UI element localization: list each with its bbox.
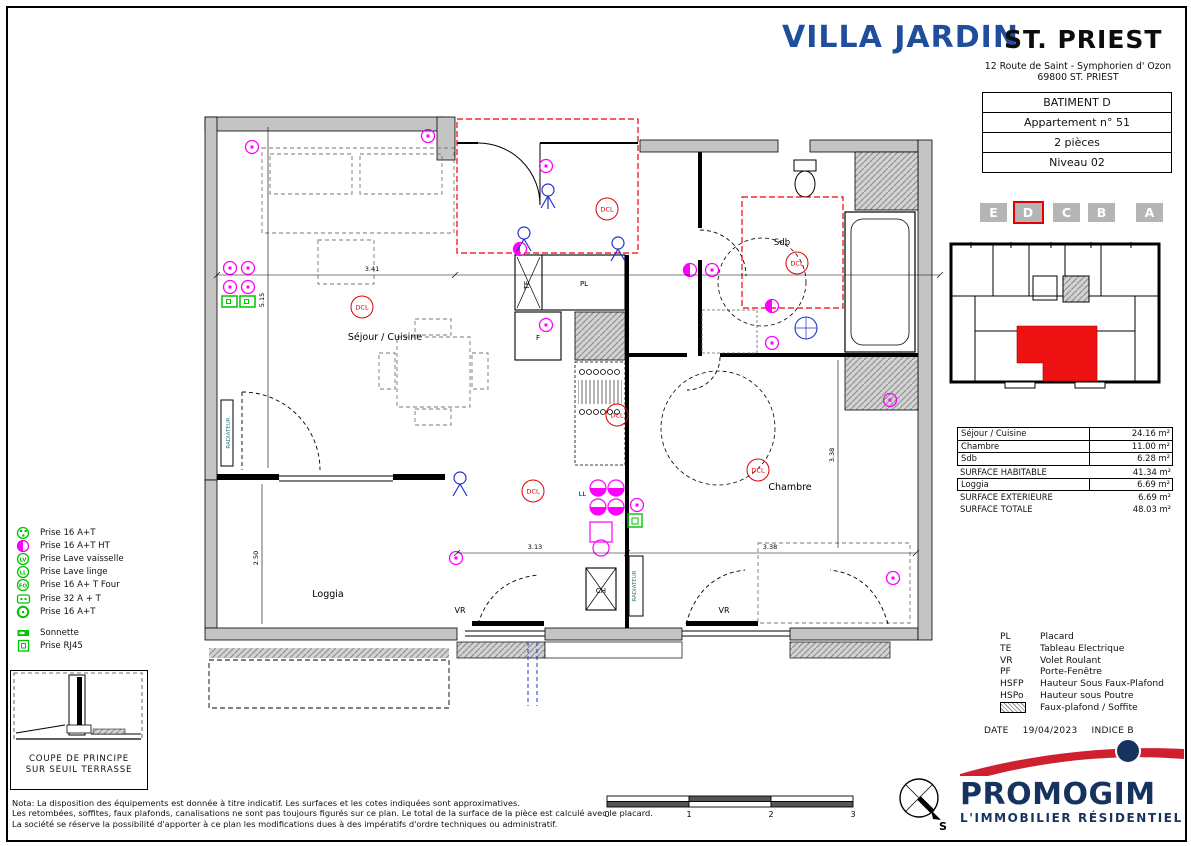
green-sockets xyxy=(222,296,255,307)
vr-label: VR xyxy=(454,606,465,615)
svg-text:2: 2 xyxy=(768,810,773,819)
dimension-lines xyxy=(214,127,943,624)
clearance-circle xyxy=(718,238,806,326)
svg-text:3.13: 3.13 xyxy=(528,543,542,551)
legend-item: FO Prise 16 A+ T Four xyxy=(16,579,216,592)
nota-line2: Les retombées, soffites, faux plafonds, … xyxy=(12,808,653,818)
prise-16at-b-icon xyxy=(16,605,31,619)
room-label-loggia: Loggia xyxy=(312,589,343,600)
date-value: 19/04/2023 xyxy=(1023,726,1078,736)
vr-label: VR xyxy=(718,606,729,615)
ch-label: CH xyxy=(596,587,606,595)
soffit-kitchen xyxy=(575,312,625,360)
svg-text:2.50: 2.50 xyxy=(252,551,260,565)
loggia-facade xyxy=(217,474,445,481)
rj45-socket xyxy=(628,514,642,527)
svg-text:3: 3 xyxy=(850,810,855,819)
svg-text:5.15: 5.15 xyxy=(258,293,266,307)
svg-text:3.38: 3.38 xyxy=(763,543,777,551)
abbreviations-legend: PLPlacard TETableau Electrique VRVolet R… xyxy=(1000,631,1164,717)
electrical-legend: Prise 16 A+T Prise 16 A+T HT LV Prise La… xyxy=(16,526,216,653)
promogim-globe-icon xyxy=(1116,740,1140,763)
legend-item: Prise 16 A+T xyxy=(16,605,216,618)
legend-item: LL Prise Lave linge xyxy=(16,566,216,579)
pl-label: PL xyxy=(580,280,588,288)
surface-row: Sdb6.28 m² xyxy=(958,452,1172,465)
surface-row: Séjour / Cuisine24.16 m² xyxy=(958,428,1172,440)
nota-line3: La société se réserve la possibilité d'a… xyxy=(12,819,653,829)
north-compass-icon: S xyxy=(895,775,949,833)
building-tile-c: C xyxy=(1053,203,1080,222)
svg-text:DCL: DCL xyxy=(751,467,765,475)
radiator-label: RADIATEUR xyxy=(226,417,232,448)
info-niveau: Niveau 02 xyxy=(983,152,1171,172)
surface-totale-row: SURFACE TOTALE48.03 m² xyxy=(957,503,1173,515)
indice-value: INDICE B xyxy=(1092,726,1134,736)
sink-symbol xyxy=(795,317,817,339)
svg-text:3.38: 3.38 xyxy=(828,448,836,462)
building-tile-a: A xyxy=(1136,203,1163,222)
scale-bar: 0 1 2 3 xyxy=(604,793,862,819)
building-tile-d-selected: D xyxy=(1013,201,1044,224)
promogim-logo: PROMOGIM L'IMMOBILIER RÉSIDENTIEL xyxy=(960,740,1186,825)
svg-text:1: 1 xyxy=(686,810,691,819)
prise-32at-icon xyxy=(16,592,31,606)
address-line1: 12 Route de Saint - Symphorien d' Ozon xyxy=(972,61,1184,72)
svg-text:LV: LV xyxy=(20,557,28,563)
radiator-label: RADIATEUR xyxy=(632,570,638,601)
legend-item: Prise 16 A+T HT xyxy=(16,539,216,552)
info-batiment: BATIMENT D xyxy=(983,93,1171,112)
legend-item: Prise RJ45 xyxy=(16,640,216,653)
prise-16at-ht-icon xyxy=(16,539,31,553)
floor-plan-sheet: VILLA JARDIN ST. PRIEST 12 Route de Sain… xyxy=(0,0,1191,846)
address-line2: 69800 ST. PRIEST xyxy=(972,72,1184,83)
legend-item: Sonnette xyxy=(16,626,216,639)
promogim-tagline: L'IMMOBILIER RÉSIDENTIEL xyxy=(960,811,1186,825)
terrace-below xyxy=(209,648,449,708)
te-label: TE xyxy=(523,281,531,291)
date-line: DATE19/04/2023INDICE B xyxy=(984,726,1148,736)
svg-text:FO: FO xyxy=(19,584,28,590)
f-label: F xyxy=(536,334,540,342)
svg-text:LL: LL xyxy=(20,570,27,576)
faux-plafond-hatch-swatch xyxy=(1000,702,1026,713)
washer-symbols xyxy=(590,480,624,556)
svg-text:DCL: DCL xyxy=(600,206,614,214)
sonnette-icon xyxy=(16,626,31,640)
city-title: ST. PRIEST xyxy=(1004,25,1162,54)
building-tile-e: E xyxy=(980,203,1007,222)
coupe-caption: COUPE DE PRINCIPE SUR SEUIL TERRASSE xyxy=(11,754,147,776)
apartment-info-table: BATIMENT D Appartement n° 51 2 pièces Ni… xyxy=(982,92,1172,173)
soffit-sdb xyxy=(845,355,918,410)
coupe-box: COUPE DE PRINCIPE SUR SEUIL TERRASSE xyxy=(10,670,148,790)
svg-text:0: 0 xyxy=(604,810,609,819)
surface-exterieure-row: SURFACE EXTERIEURE6.69 m² xyxy=(957,491,1173,503)
vr-box xyxy=(686,621,758,626)
project-title: VILLA JARDIN xyxy=(782,20,1019,55)
legend-item: Prise 32 A + T xyxy=(16,592,216,605)
prise-lave-vaisselle-icon: LV xyxy=(16,552,31,566)
coupe-drawing xyxy=(11,671,145,747)
promogim-name: PROMOGIM xyxy=(960,780,1186,810)
nota-block: Nota: La disposition des équipements est… xyxy=(12,798,653,829)
prise-lave-linge-icon: LL xyxy=(16,565,31,579)
main-floor-plan: LL CH RADIATEUR RADIATEUR xyxy=(190,105,950,720)
svg-text:DCL: DCL xyxy=(355,304,369,312)
svg-text:S: S xyxy=(939,820,947,833)
key-plan xyxy=(945,236,1167,390)
svg-text:DCL: DCL xyxy=(610,412,624,420)
svg-text:3.41: 3.41 xyxy=(365,265,379,273)
surface-loggia-row: Loggia6.69 m² xyxy=(958,479,1172,491)
room-label-chambre: Chambre xyxy=(768,482,811,493)
vr-box xyxy=(472,621,544,626)
washer-label: LL xyxy=(579,490,587,498)
prise-rj45-icon xyxy=(16,639,31,653)
promogim-swoosh xyxy=(960,740,1184,776)
legend-item: Prise 16 A+T xyxy=(16,526,216,539)
surfaces-table: Séjour / Cuisine24.16 m² Chambre11.00 m²… xyxy=(957,427,1173,515)
room-label-sdb: Sdb xyxy=(774,238,790,248)
building-tile-b: B xyxy=(1088,203,1115,222)
soffit-corner xyxy=(855,152,918,210)
surface-row: Chambre11.00 m² xyxy=(958,440,1172,453)
prise-four-icon: FO xyxy=(16,578,31,592)
room-label-sejour: Séjour / Cuisine xyxy=(348,332,422,343)
address-block: 12 Route de Saint - Symphorien d' Ozon 6… xyxy=(972,61,1184,83)
surface-habitable-row: SURFACE HABITABLE41.34 m² xyxy=(957,466,1173,478)
nota-line1: Nota: La disposition des équipements est… xyxy=(12,798,653,808)
svg-text:DCL: DCL xyxy=(526,488,540,496)
info-pieces: 2 pièces xyxy=(983,132,1171,152)
faux-plafond-zone xyxy=(457,119,638,253)
prise-16at-icon xyxy=(16,526,31,540)
info-appartement: Appartement n° 51 xyxy=(983,112,1171,132)
exterior-walls xyxy=(205,117,932,640)
legend-item: LV Prise Lave vaisselle xyxy=(16,552,216,565)
svg-text:DCL: DCL xyxy=(790,260,804,268)
